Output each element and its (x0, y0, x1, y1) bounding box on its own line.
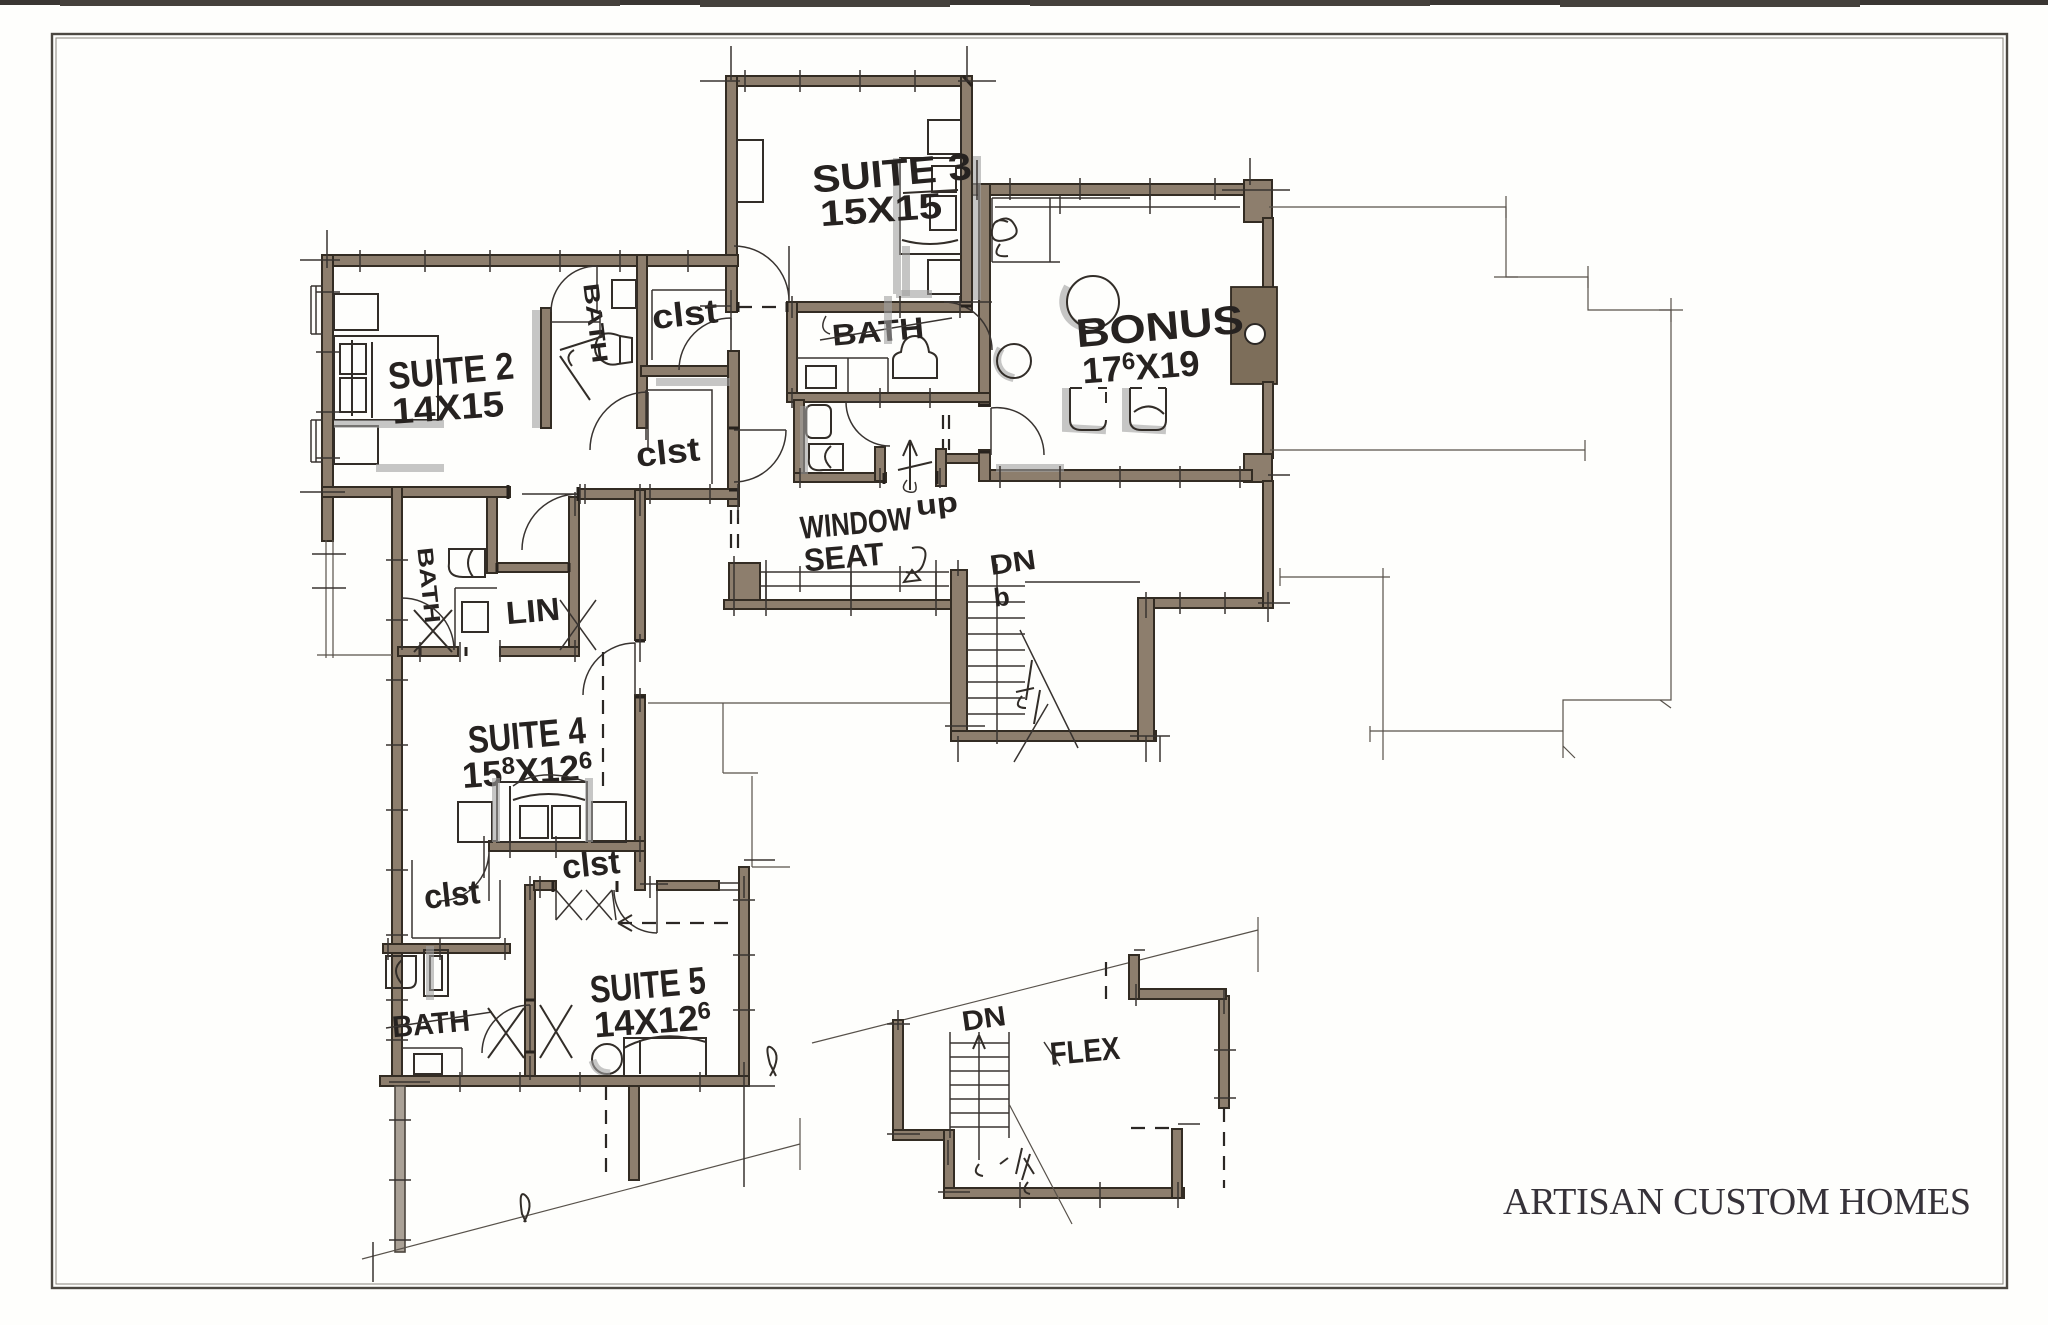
svg-text:ARTISAN CUSTOM HOMES: ARTISAN CUSTOM HOMES (1503, 1181, 1971, 1223)
svg-text:176X19: 176X19 (1081, 342, 1201, 391)
svg-text:clst: clst (634, 430, 702, 474)
svg-text:LIN: LIN (504, 591, 561, 632)
svg-text:14X15: 14X15 (391, 383, 506, 432)
svg-text:clst: clst (650, 292, 720, 337)
svg-text:b: b (992, 581, 1011, 612)
svg-text:DN: DN (988, 544, 1038, 581)
svg-text:BATH: BATH (391, 1005, 472, 1045)
svg-text:SEAT: SEAT (802, 536, 885, 579)
svg-text:up: up (914, 486, 959, 521)
svg-text:clst: clst (422, 873, 482, 917)
svg-text:DN: DN (960, 1000, 1008, 1037)
svg-text:15X15: 15X15 (819, 185, 944, 234)
svg-text:clst: clst (560, 843, 622, 887)
